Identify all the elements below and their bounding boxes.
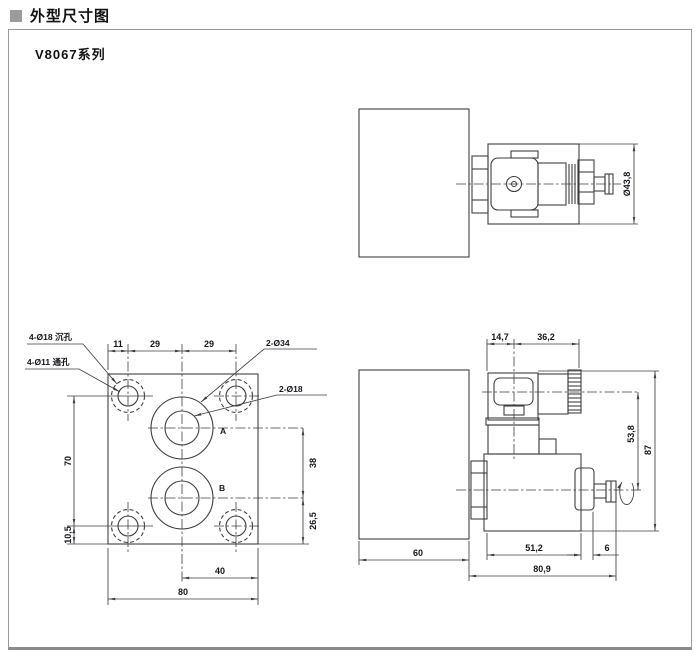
centerlines [128,344,303,584]
dim-total-height: 87 [643,445,653,455]
dimensions: 14,7 36,2 53,8 87 60 51,2 6 80,9 [359,332,659,581]
side-view-drawing: 14,7 36,2 53,8 87 60 51,2 6 80,9 [341,331,676,591]
dim-bottom-outer: 80 [178,587,188,597]
dim-top-right: 36,2 [537,332,555,342]
dim-top-left: 14,7 [491,332,509,342]
solenoid-coil [471,418,581,531]
din-connector [488,370,581,420]
port-a-label: A [220,426,226,436]
page-title: 外型尺寸图 [30,5,110,26]
dim-axis-offset: 53,8 [626,425,636,443]
section-bullet-icon [10,10,22,22]
mounting-face-drawing: 11 29 29 70 10,5 38 26,5 40 80 4-Ø18 沉孔 [21,326,331,616]
note-counterbore: 4-Ø18 沉孔 [29,332,72,342]
dim-right-lower: 26,5 [308,512,318,530]
dimensions: 11 29 29 70 10,5 38 26,5 40 80 [63,339,318,605]
dim-block-width: 60 [413,548,423,558]
dim-top-mid: 29 [150,339,160,349]
dim-top-right: 29 [204,339,214,349]
dim-coil-diameter: Ø43,8 [622,172,632,197]
dim-right-upper: 38 [308,458,318,468]
drawing-panel: V8067系列 [8,29,692,650]
port-b-label: B [219,483,225,493]
dim-left-bottom: 10,5 [63,526,73,544]
manual-override [575,468,634,510]
dim-left-span: 70 [63,456,73,466]
dim-coil-length: 51,2 [525,543,543,553]
valve-body-block [359,370,469,539]
note-large-bore: 2-Ø34 [266,338,290,348]
note-small-bore: 2-Ø18 [279,384,303,394]
dim-top-left: 11 [113,339,123,349]
rotation-arrow-icon [620,482,634,505]
end-view-drawing: Ø43,8 [341,96,651,271]
valve-body-block [359,109,469,257]
series-label: V8067系列 [35,44,106,63]
dim-total-length: 80,9 [533,564,551,574]
dim-bottom-inner: 40 [215,566,225,576]
section-header: 外型尺寸图 [10,5,110,26]
note-through-hole: 4-Ø11 通孔 [27,357,70,367]
dim-override-len: 6 [604,543,609,553]
